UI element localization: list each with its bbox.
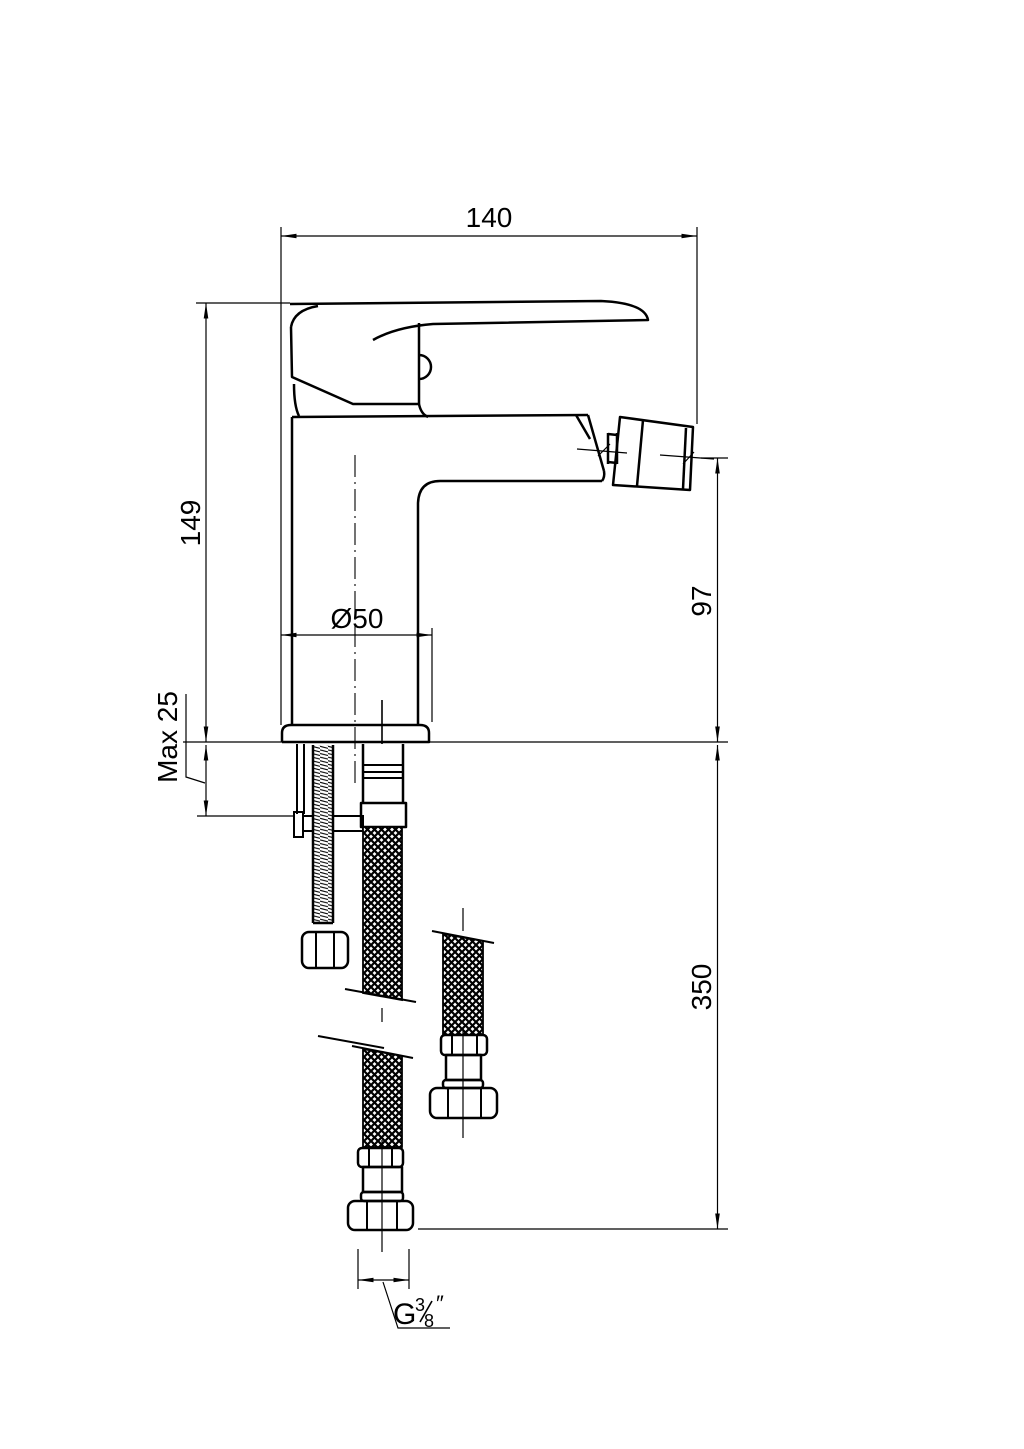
faucet-technical-drawing: 140 149 Max 25 97 350 Ø50 G 3 8 ″ xyxy=(0,0,1024,1449)
thread-denominator: 8 xyxy=(424,1311,434,1331)
centerlines xyxy=(355,444,714,1252)
label-hose-length: 350 xyxy=(686,964,717,1011)
lever-handle xyxy=(290,301,648,417)
dimension-labels: 140 149 Max 25 97 350 Ø50 G 3 8 ″ xyxy=(152,202,717,1331)
faucet-outline xyxy=(282,301,693,1230)
aerator xyxy=(608,417,693,490)
label-spout-reach: 140 xyxy=(466,202,513,233)
label-thread-size: G 3 8 ″ xyxy=(393,1291,444,1331)
label-body-height: 149 xyxy=(175,500,206,547)
hose-fitting-left xyxy=(348,1148,413,1230)
label-spout-height: 97 xyxy=(686,585,717,616)
thread-g: G xyxy=(393,1298,416,1331)
label-deck-thickness: Max 25 xyxy=(152,691,183,783)
drawing-sheet: 140 149 Max 25 97 350 Ø50 G 3 8 ″ xyxy=(0,0,1024,1449)
dimension-lines xyxy=(183,227,728,1328)
label-base-diameter: Ø50 xyxy=(331,603,384,634)
supply-hoses xyxy=(318,827,494,1147)
thread-inch-mark: ″ xyxy=(436,1291,444,1316)
faucet-body xyxy=(282,415,604,742)
leader-deck-thickness xyxy=(186,694,205,783)
